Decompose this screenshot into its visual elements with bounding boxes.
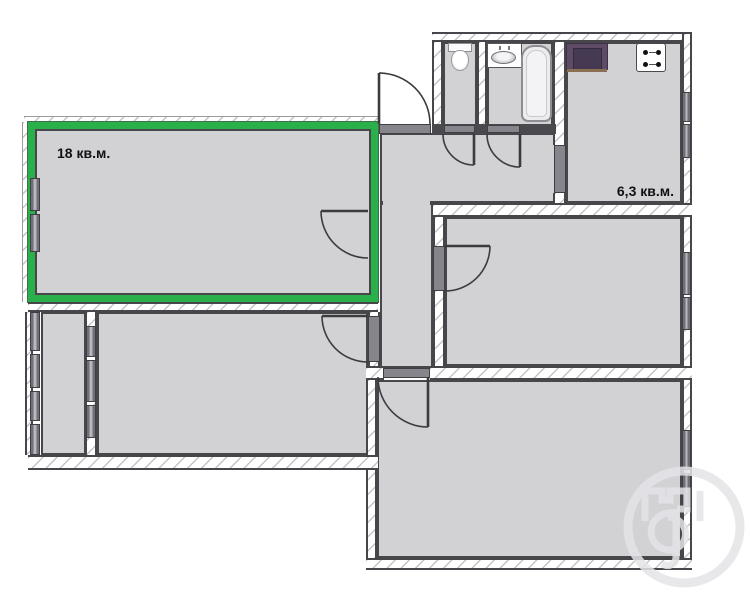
room-living-area-label: 18 кв.м.: [57, 145, 110, 161]
door-opening-middle-right-room: [433, 246, 445, 291]
window-middleright-2: [682, 297, 691, 330]
kitchen-counter-top: [573, 48, 602, 71]
window-middleright-1: [682, 252, 691, 295]
wall-bottomroom-bottom: [366, 558, 692, 570]
room-corridor: [380, 203, 433, 368]
window-balcony-3: [30, 391, 40, 421]
stove-dash: [649, 64, 656, 65]
wall-bottomroom-top-left: [366, 366, 384, 380]
stove-burner: [656, 50, 661, 55]
stove-dash: [649, 52, 656, 53]
room-living: 18 кв.м.: [35, 129, 371, 295]
toilet-icon: [448, 43, 470, 70]
kitchen-counter-edge: [567, 69, 607, 72]
sink-basin: [491, 51, 516, 64]
window-living-2: [30, 214, 40, 252]
hall-corridor-junction: [383, 199, 430, 207]
bathtub-inner: [526, 50, 547, 117]
room-living-highlight[interactable]: 18 кв.м.: [28, 122, 378, 302]
wall-corridor-room-lower: [433, 291, 445, 366]
sink-icon: [487, 43, 522, 68]
stove-burner: [643, 50, 648, 55]
balcony: [41, 312, 86, 455]
wall-middleleft-top: [28, 302, 378, 312]
stove-burner: [656, 62, 661, 67]
wall-wc-left: [432, 42, 443, 125]
wall-wc-bath-divider: [477, 42, 487, 125]
toilet-bowl: [451, 50, 469, 71]
door-opening-wc: [444, 125, 475, 133]
window-kitchen-1: [682, 92, 691, 122]
stove-burner: [643, 62, 648, 67]
door-opening-kitchen: [554, 145, 566, 193]
floor-plan: 18 кв.м. 6,3 кв.м.: [0, 0, 750, 600]
wall-bottomroom-left: [366, 380, 377, 570]
window-balcony-2: [30, 354, 40, 388]
room-middle-right: [445, 217, 682, 366]
window-partition-2: [86, 360, 96, 402]
window-living-1: [30, 178, 40, 211]
window-partition-1: [86, 326, 96, 357]
window-partition-3: [86, 405, 96, 438]
wall-top: [432, 32, 692, 42]
window-bottomroom-1: [682, 430, 691, 470]
wall-kitchen-bottom: [433, 203, 692, 217]
room-hallway: [380, 133, 556, 203]
door-opening-entrance: [379, 124, 431, 134]
wall-middleleft-bottom: [28, 455, 378, 470]
wall-corridor-room-upper: [433, 217, 445, 247]
window-balcony-1: [30, 312, 40, 351]
stove-icon: [636, 43, 666, 72]
room-kitchen-area-label: 6,3 кв.м.: [617, 183, 674, 199]
sink-tap: [499, 46, 501, 50]
door-opening-middle-left-room: [368, 316, 380, 362]
door-opening-bottom-room: [383, 368, 430, 378]
kitchen-counter: [566, 43, 608, 70]
door-opening-bathroom: [487, 125, 520, 133]
window-bottomroom-2: [682, 473, 691, 507]
bathtub-icon: [521, 45, 552, 122]
room-middle-left: [97, 312, 368, 455]
room-bottom: [377, 380, 682, 558]
sink-tap: [508, 46, 510, 50]
wall-bottomroom-top-right: [430, 366, 692, 380]
window-balcony-4: [30, 424, 40, 455]
door-arc-entrance: [379, 73, 430, 124]
window-kitchen-2: [682, 124, 691, 158]
